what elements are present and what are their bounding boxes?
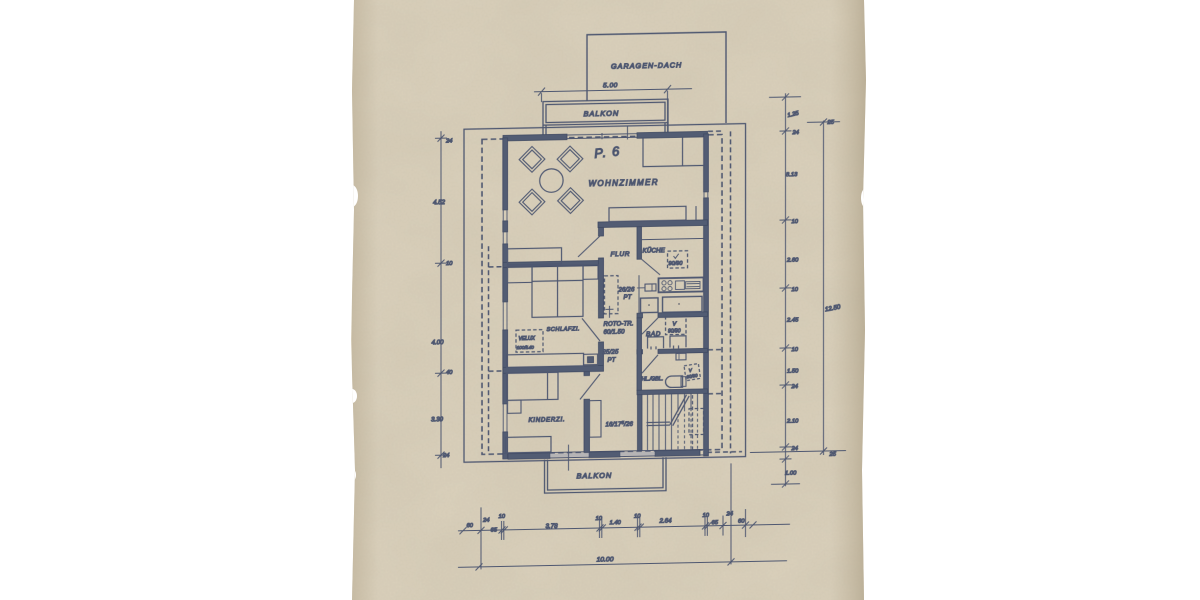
- svg-text:65: 65: [712, 520, 719, 526]
- svg-text:FLUR: FLUR: [610, 251, 630, 258]
- svg-text:24: 24: [442, 453, 449, 459]
- svg-text:60: 60: [467, 523, 474, 529]
- svg-text:10: 10: [596, 516, 603, 522]
- svg-text:40: 40: [446, 370, 453, 376]
- svg-text:24: 24: [445, 138, 452, 144]
- svg-text:KINDERZI.: KINDERZI.: [529, 416, 566, 424]
- svg-text:24: 24: [791, 446, 798, 452]
- svg-text:10: 10: [792, 347, 799, 353]
- svg-text:1.00: 1.00: [785, 471, 797, 477]
- svg-text:4.00: 4.00: [432, 339, 445, 346]
- svg-text:ROTO-TR.: ROTO-TR.: [604, 321, 634, 328]
- svg-text:24: 24: [792, 130, 799, 136]
- svg-text:10.00: 10.00: [596, 556, 613, 563]
- svg-text:8.13: 8.13: [786, 172, 798, 178]
- svg-text:PT: PT: [624, 295, 633, 301]
- svg-text:1.40: 1.40: [610, 520, 622, 526]
- svg-text:KÜCHE: KÜCHE: [643, 247, 666, 254]
- svg-text:2.45: 2.45: [786, 318, 799, 324]
- svg-text:24: 24: [791, 384, 798, 390]
- svg-text:10: 10: [792, 287, 799, 293]
- svg-text:25: 25: [829, 452, 837, 458]
- svg-text:GARAGEN-DACH: GARAGEN-DACH: [611, 60, 682, 70]
- svg-text:65: 65: [491, 528, 498, 534]
- svg-text:1.50: 1.50: [787, 369, 799, 375]
- svg-text:5.00: 5.00: [603, 82, 618, 89]
- svg-text:26/26: 26/26: [618, 287, 635, 293]
- svg-text:VELUX: VELUX: [519, 336, 536, 342]
- svg-text:2.10: 2.10: [786, 419, 799, 425]
- svg-text:HL./GBL.: HL./GBL.: [642, 376, 664, 382]
- svg-text:10: 10: [446, 261, 453, 267]
- svg-text:90/90: 90/90: [668, 328, 681, 334]
- svg-text:25/25: 25/25: [602, 350, 619, 356]
- svg-text:PT: PT: [607, 357, 616, 363]
- svg-text:2.64: 2.64: [659, 518, 673, 525]
- svg-text:60: 60: [738, 519, 745, 525]
- svg-text:2.60: 2.60: [786, 258, 799, 264]
- svg-text:10: 10: [499, 514, 506, 520]
- svg-text:BALKON: BALKON: [584, 109, 620, 119]
- svg-text:SCHLAFZI.: SCHLAFZI.: [547, 326, 581, 333]
- svg-text:3.78: 3.78: [546, 523, 559, 530]
- svg-text:100/140: 100/140: [517, 345, 535, 351]
- svg-text:24: 24: [482, 518, 489, 524]
- svg-text:10: 10: [634, 514, 641, 520]
- svg-text:BALKON: BALKON: [577, 471, 613, 481]
- svg-text:3.30: 3.30: [431, 416, 444, 423]
- svg-text:WOHNZIMMER: WOHNZIMMER: [589, 178, 659, 188]
- svg-text:24: 24: [726, 511, 733, 517]
- svg-text:90/90: 90/90: [668, 261, 682, 267]
- svg-text:P. 6: P. 6: [594, 143, 621, 161]
- svg-text:10: 10: [703, 513, 710, 519]
- svg-text:10: 10: [792, 219, 799, 225]
- svg-text:25: 25: [827, 120, 835, 126]
- svg-text:4.52: 4.52: [433, 199, 446, 206]
- svg-text:60/1.50: 60/1.50: [604, 329, 626, 335]
